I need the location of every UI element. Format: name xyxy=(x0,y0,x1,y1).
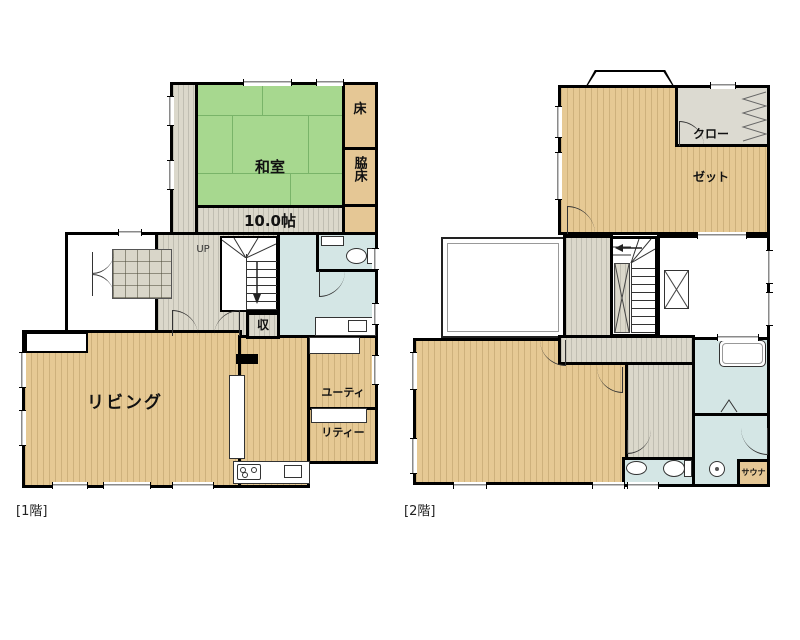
closet-hanger-icon xyxy=(741,90,768,144)
window xyxy=(172,482,214,489)
utility-label: ユーティ リティー xyxy=(308,360,378,466)
window xyxy=(453,482,487,489)
window xyxy=(627,482,659,489)
stairs-up-label: UP xyxy=(188,244,218,256)
burner-icon xyxy=(251,467,257,473)
stair-treads xyxy=(631,261,655,333)
stair-void xyxy=(614,263,630,333)
stool-center-dot xyxy=(715,467,719,471)
window xyxy=(19,410,26,446)
living-label: リビング xyxy=(45,393,205,413)
window xyxy=(316,79,344,86)
closet-label-line2: ゼット xyxy=(682,170,740,184)
hallway-floor2 xyxy=(563,235,613,338)
window xyxy=(410,438,417,474)
hall-landing-strip xyxy=(558,335,695,365)
burner-icon xyxy=(242,472,248,478)
window xyxy=(717,334,759,341)
closet-label-line1: クロー xyxy=(682,127,740,141)
stair-direction-arrow xyxy=(614,241,650,255)
stove-cooktop xyxy=(237,464,261,480)
window xyxy=(167,160,174,190)
window xyxy=(410,352,417,390)
floor-plan-page: { "colors": { "wall": "#000000", "tatami… xyxy=(0,0,800,640)
window xyxy=(697,232,747,239)
toilet-bowl xyxy=(346,248,367,264)
bathtub-inner-line xyxy=(722,343,763,364)
window xyxy=(167,96,174,126)
window xyxy=(103,482,151,489)
floor2-caption: [2階] xyxy=(404,500,435,519)
window xyxy=(592,482,625,489)
roof-terrace xyxy=(657,235,770,340)
bay-window xyxy=(586,70,674,86)
entry-step-notch xyxy=(25,332,88,353)
tatami-grid-line xyxy=(262,85,263,115)
genkan-tile-floor xyxy=(112,249,172,299)
vanity-sink xyxy=(348,320,367,332)
toilet-sink-oval xyxy=(626,461,647,475)
utility-counter xyxy=(309,337,360,354)
window xyxy=(766,292,773,326)
window xyxy=(52,482,88,489)
tatami-grid-line xyxy=(198,115,342,116)
stair-down-arrow xyxy=(250,260,264,308)
balcony xyxy=(441,237,565,338)
kitchen-divider-wall xyxy=(236,354,258,364)
window xyxy=(243,79,292,86)
toilet-tank xyxy=(684,460,692,477)
sauna-label: サウナ xyxy=(742,468,766,478)
kitchen-peninsula-counter xyxy=(229,375,245,459)
staircase-floor2 xyxy=(610,236,658,337)
washitsu-size: 10.0帖 xyxy=(210,212,330,230)
window xyxy=(372,248,379,270)
bay-window-glass xyxy=(588,72,672,85)
storage-label: 収 xyxy=(257,318,269,332)
toilet-bowl xyxy=(663,460,685,477)
storage-closet-floor1: 収 xyxy=(246,312,280,339)
window xyxy=(710,82,736,89)
floor1-caption: [1階] xyxy=(16,500,47,519)
bath-stool xyxy=(709,461,725,477)
hatch-x-mark xyxy=(665,271,688,308)
floor2-plan: サウナ クロー ゼット xyxy=(0,0,800,640)
washitsu-name: 和室 xyxy=(210,158,330,176)
utility-label-line2: リティー xyxy=(308,426,378,439)
window xyxy=(766,250,773,284)
bathtub xyxy=(719,340,766,367)
tokonoma-label: 床 xyxy=(342,102,378,118)
utility-label-line1: ユーティ xyxy=(308,386,378,399)
window xyxy=(555,106,562,138)
washitsu-label: 和室 10.0帖 xyxy=(210,122,330,266)
wakidoko-label: 脇床 xyxy=(351,156,367,182)
folding-door-mark xyxy=(720,399,738,413)
window xyxy=(118,229,142,236)
sauna-room: サウナ xyxy=(737,459,770,487)
window xyxy=(555,152,562,200)
window xyxy=(19,352,26,388)
window xyxy=(372,303,379,325)
kitchen-sink xyxy=(284,465,302,478)
void-x-mark xyxy=(615,264,629,332)
closet-label: クロー ゼット xyxy=(682,98,740,213)
balcony-inner-line xyxy=(447,243,559,332)
roof-hatch xyxy=(664,270,689,309)
